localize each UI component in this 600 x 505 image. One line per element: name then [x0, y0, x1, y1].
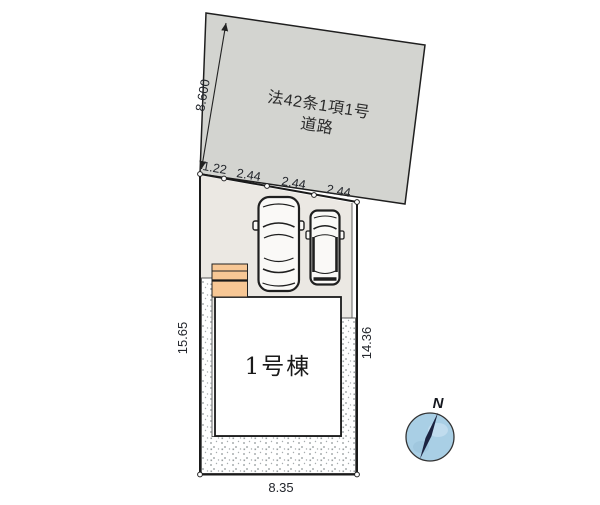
site-plan: 8.600 法42条1項1号 道路 1号棟	[0, 0, 600, 505]
porch-steps	[212, 264, 248, 297]
porch-step-1	[212, 264, 248, 271]
porch-step-2	[212, 271, 248, 280]
lot-bottom-dimension: 8.35	[268, 480, 293, 495]
site-plan-svg: 8.600 法42条1項1号 道路 1号棟	[0, 0, 600, 505]
porch-landing	[212, 280, 248, 297]
lot-right-dimension: 14.36	[359, 327, 374, 360]
car-large-body	[259, 197, 300, 291]
car-icon-large	[253, 197, 304, 291]
building-label: 1号棟	[245, 354, 312, 380]
lot-left-dimension: 15.65	[175, 322, 190, 355]
car-icon-small	[306, 211, 344, 285]
compass: N	[406, 395, 454, 461]
north-label: N	[433, 395, 445, 412]
